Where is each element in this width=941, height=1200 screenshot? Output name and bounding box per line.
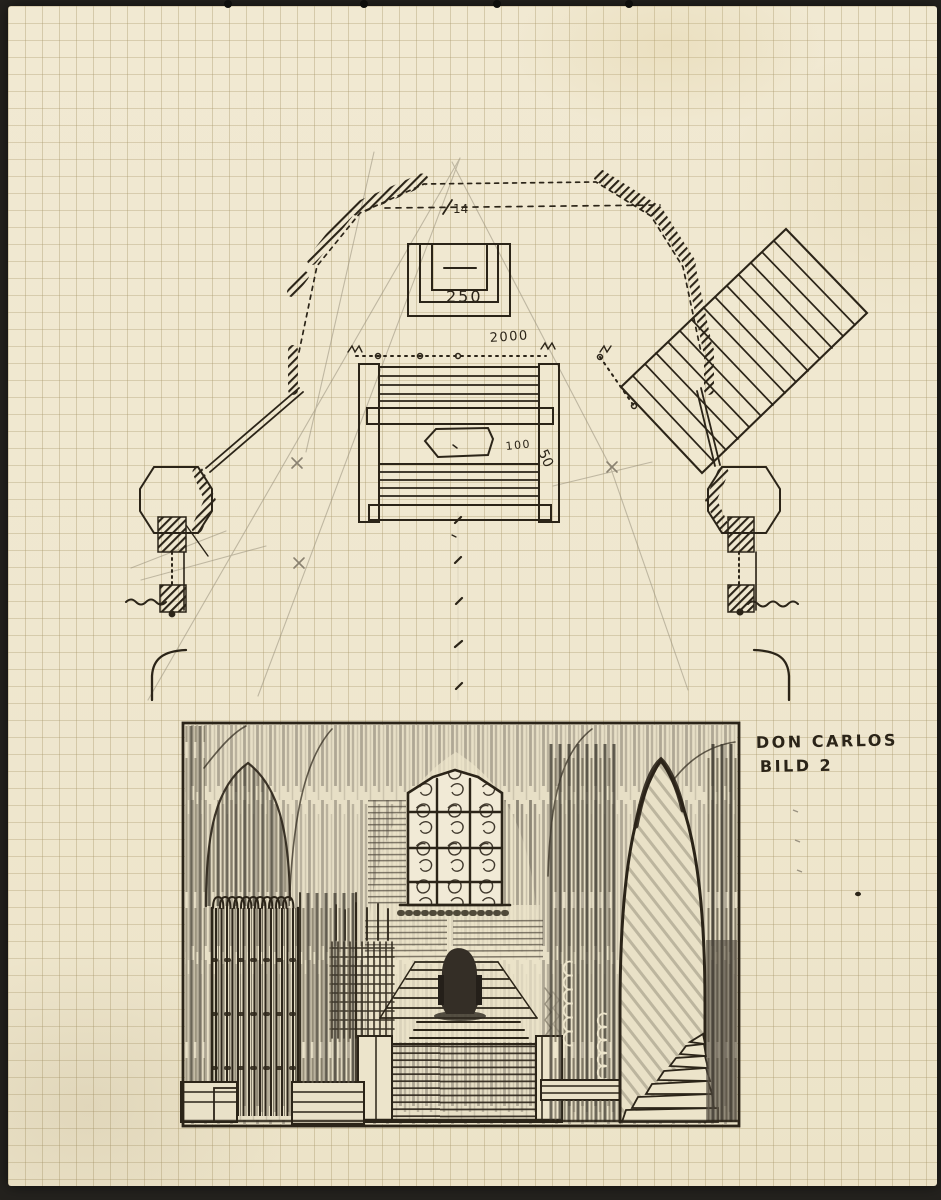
- coffin: [425, 428, 493, 457]
- label-apse-width: 2000: [489, 328, 529, 346]
- label-center-tick: 14: [453, 202, 468, 216]
- stage-sketch: [181, 723, 739, 1126]
- bier-platform: [348, 343, 637, 522]
- caption-title: DON CARLOS: [756, 731, 898, 752]
- right-pillar: [541, 744, 623, 1122]
- grand-staircase: [356, 1036, 562, 1122]
- label-coffin: 100: [505, 437, 532, 453]
- right-corner-shadow: [706, 940, 737, 1122]
- construction-lines: [131, 152, 688, 700]
- caption-subtitle: BILD 2: [760, 756, 834, 776]
- label-altar-steps: 250: [446, 287, 483, 306]
- right-octagon-pillar: [708, 467, 798, 615]
- ground-plan: 250 2000 100 50 14: [126, 152, 867, 700]
- label-side: 50: [534, 447, 556, 470]
- apse-wall: [292, 176, 709, 390]
- margin-marks: [793, 810, 861, 896]
- drawing-layer: 250 2000 100 50 14: [0, 0, 941, 1200]
- stair-ramp: [621, 229, 867, 473]
- caption-block: DON CARLOS BILD 2: [756, 731, 898, 776]
- scanned-sketch-page: 250 2000 100 50 14: [0, 0, 941, 1200]
- center-axis: [452, 517, 462, 689]
- binding-marks: [224, 0, 633, 8]
- left-edge-shading: [185, 726, 205, 1122]
- floor-hooks: [152, 650, 789, 700]
- mid-pillar: [300, 893, 356, 1083]
